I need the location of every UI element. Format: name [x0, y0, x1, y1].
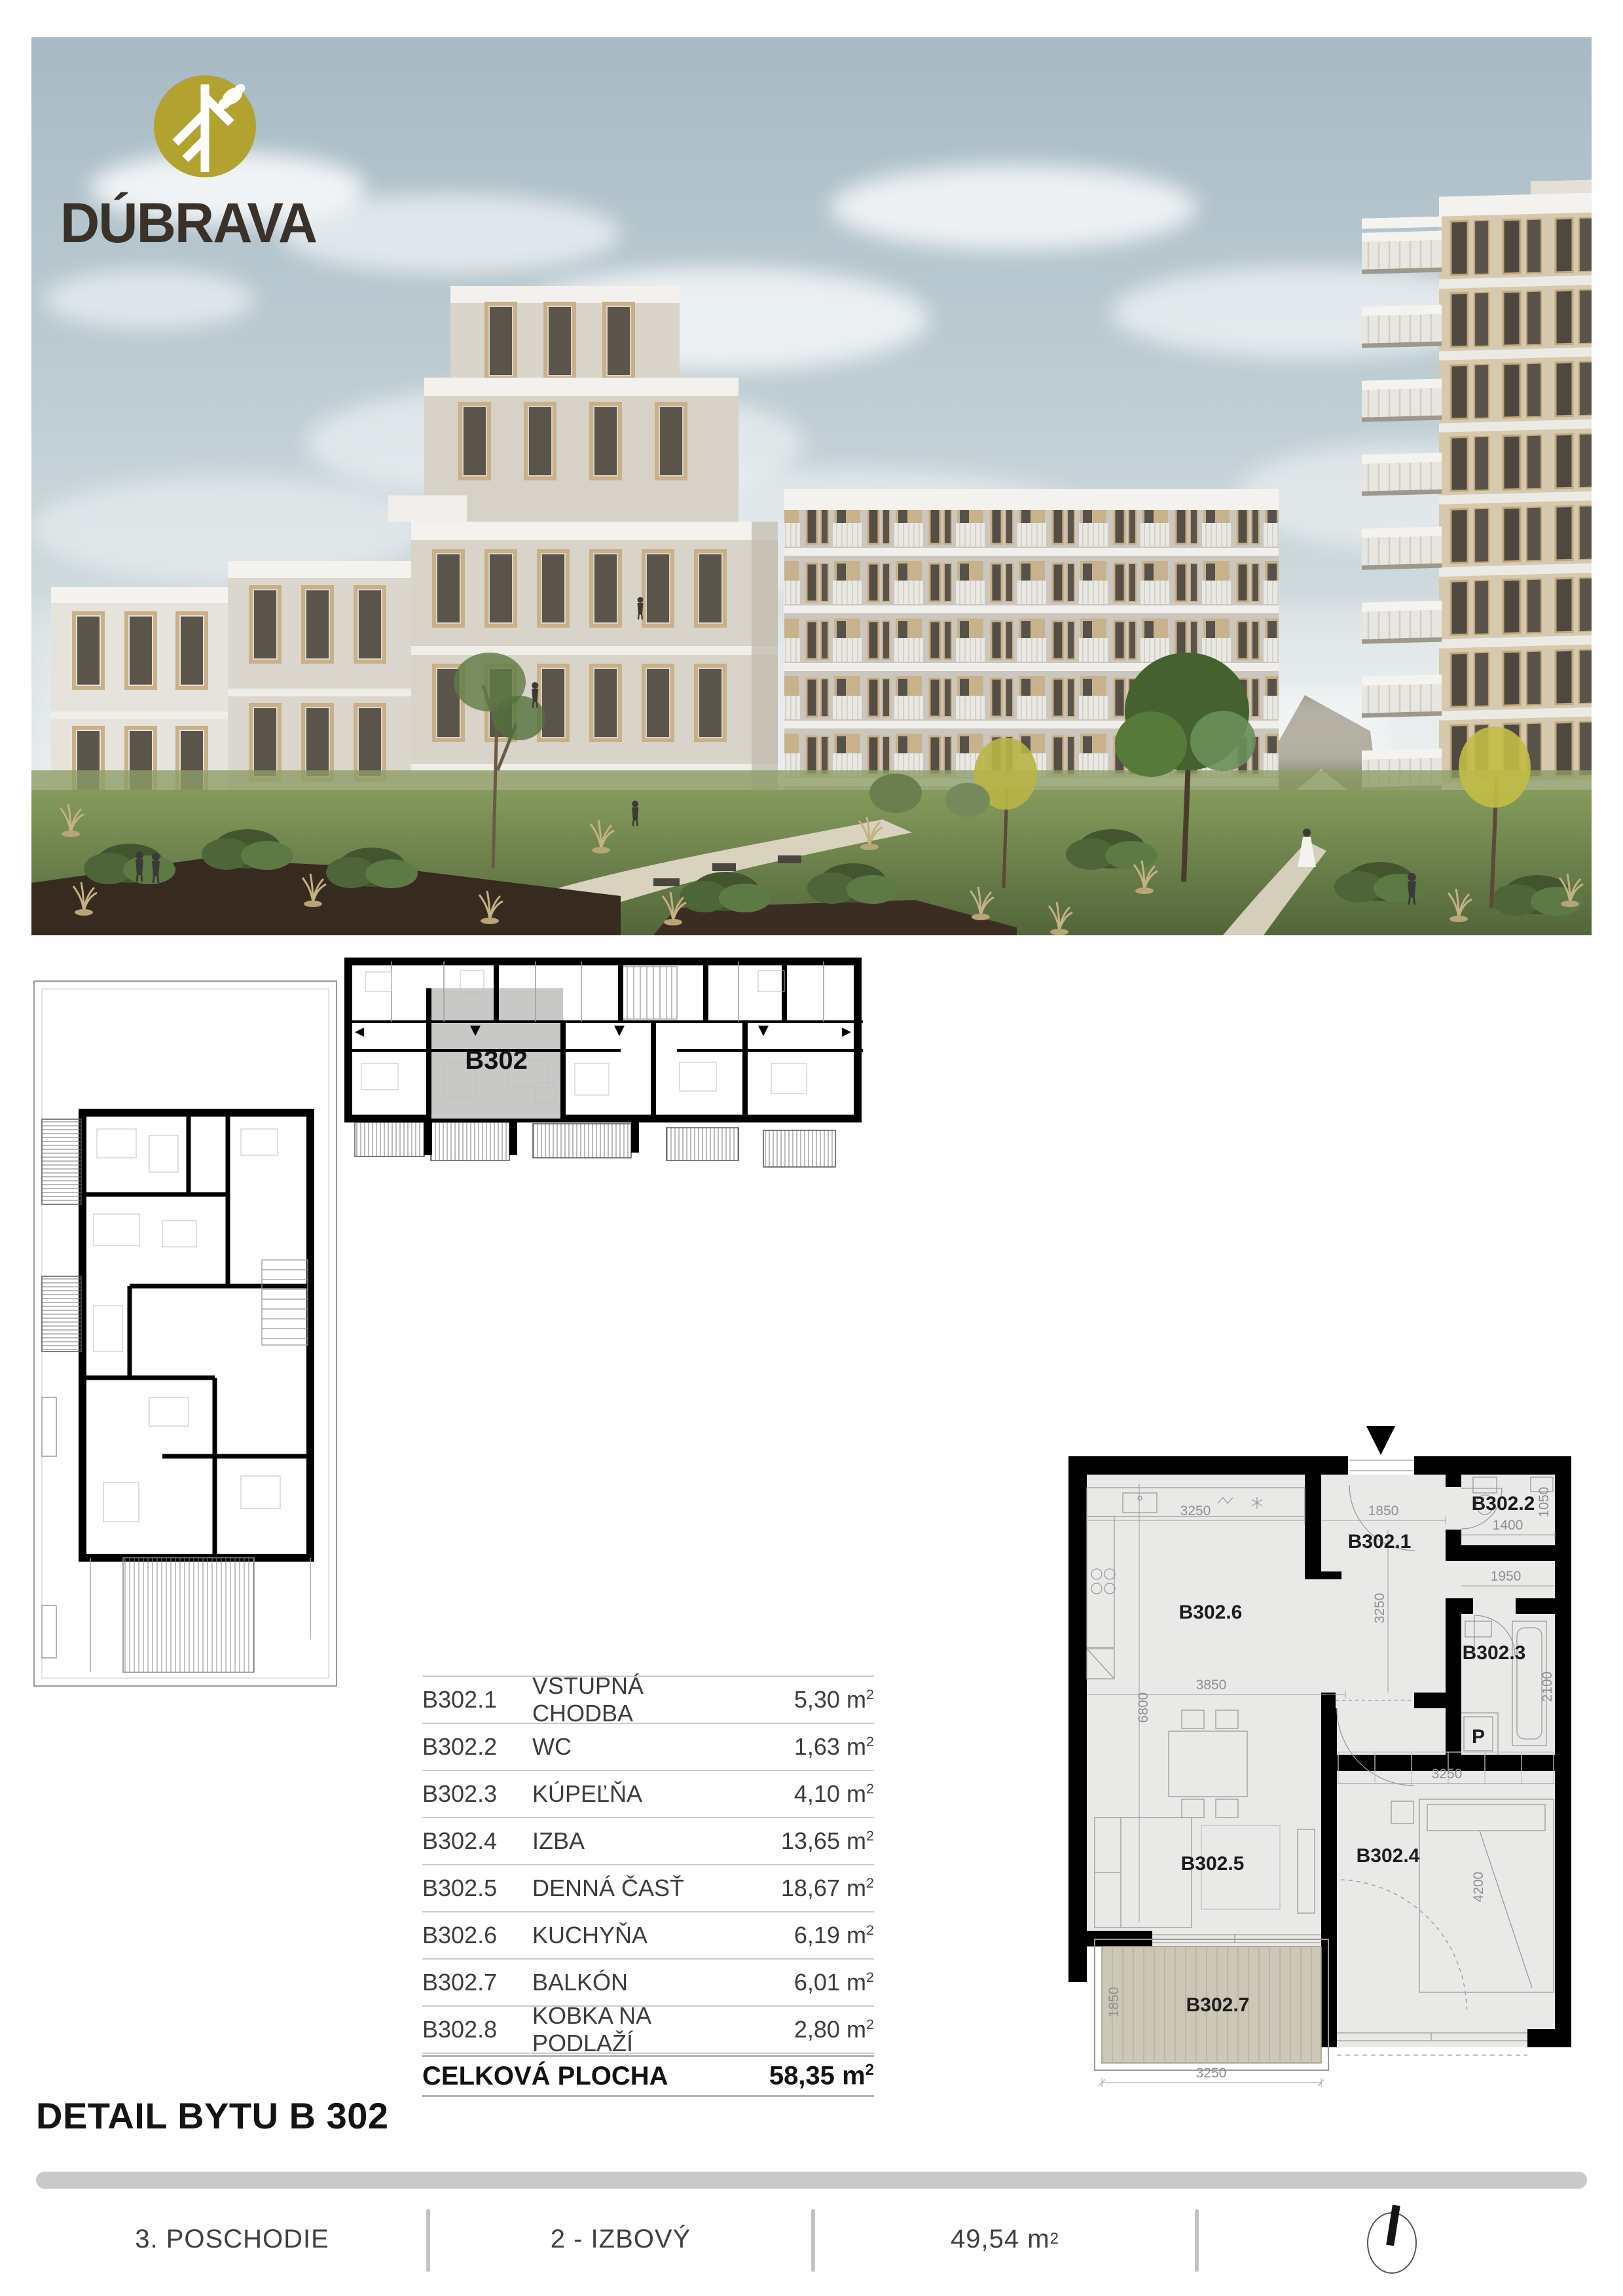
- table-row: B302.6 KUCHYŇA 6,19 m2: [422, 1911, 874, 1958]
- room-name: KOBKA NA PODLAŽÍ: [532, 2002, 750, 2057]
- svg-text:3250: 3250: [1180, 1503, 1211, 1518]
- room-name: VSTUPNÁ CHODBA: [532, 1672, 750, 1727]
- room-name: KUCHYŇA: [532, 1922, 750, 1949]
- terrace-deck: [123, 1558, 254, 1672]
- svg-text:1050: 1050: [1537, 1487, 1552, 1518]
- footer-area: 49,54 m2: [813, 2202, 1197, 2276]
- room-label-washer: P: [1472, 1726, 1485, 1748]
- brand-logo: [147, 69, 263, 184]
- svg-text:3850: 3850: [1196, 1677, 1227, 1693]
- room-name: IZBA: [532, 1827, 750, 1855]
- room-name: DENNÁ ČASŤ: [532, 1874, 750, 1902]
- footer-layout: 2 - IZBOVÝ: [428, 2202, 813, 2276]
- room-label-bedroom: B302.4: [1357, 1845, 1420, 1867]
- table-row: B302.4 IZBA 13,65 m2: [422, 1817, 874, 1864]
- tree-logo-icon: [147, 69, 263, 184]
- hero-rendering: [31, 37, 1592, 935]
- room-table: B302.1 VSTUPNÁ CHODBA 5,30 m2 B302.2 WC …: [422, 1676, 874, 2054]
- total-label: CELKOVÁ PLOCHA: [422, 2062, 743, 2091]
- footer-divider: [426, 2209, 430, 2272]
- table-row: B302.8 KOBKA NA PODLAŽÍ 2,80 m2: [422, 2005, 874, 2054]
- room-name: KÚPEĽŇA: [532, 1780, 750, 1808]
- brochure-page: DÚBRAVA: [0, 0, 1623, 2296]
- room-code: B302.8: [422, 2016, 532, 2043]
- room-label-wc: B302.2: [1472, 1493, 1535, 1515]
- room-area: 2,80 m2: [750, 2016, 874, 2043]
- room-code: B302.4: [422, 1827, 532, 1855]
- page-title: DETAIL BYTU B 302: [36, 2094, 389, 2137]
- room-code: B302.5: [422, 1874, 532, 1902]
- room-code: B302.7: [422, 1969, 532, 1996]
- room-area: 5,30 m2: [750, 1686, 874, 1713]
- footer-compass-cell: [1197, 2202, 1587, 2276]
- footer-divider: [1195, 2209, 1199, 2272]
- table-row: B302.2 WC 1,63 m2: [422, 1723, 874, 1770]
- svg-text:2100: 2100: [1540, 1672, 1555, 1702]
- room-name: BALKÓN: [532, 1969, 750, 1996]
- table-row: B302.7 BALKÓN 6,01 m2: [422, 1958, 874, 2005]
- svg-text:1850: 1850: [1106, 1987, 1122, 2018]
- room-code: B302.1: [422, 1686, 532, 1713]
- room-area: 4,10 m2: [750, 1780, 874, 1808]
- footer-divider: [811, 2209, 815, 2272]
- brand-name: DÚBRAVA: [60, 191, 316, 256]
- room-area: 1,63 m2: [750, 1733, 874, 1761]
- room-label-bath: B302.3: [1463, 1642, 1526, 1664]
- svg-text:1400: 1400: [1493, 1518, 1523, 1533]
- footer-floor: 3. POSCHODIE: [36, 2202, 428, 2276]
- table-row: B302.1 VSTUPNÁ CHODBA 5,30 m2: [422, 1676, 874, 1723]
- room-area: 13,65 m2: [750, 1827, 874, 1855]
- room-code: B302.3: [422, 1780, 532, 1808]
- room-code: B302.6: [422, 1922, 532, 1949]
- svg-text:3250: 3250: [1432, 1767, 1463, 1782]
- room-name: WC: [532, 1733, 750, 1761]
- room-area: 6,01 m2: [750, 1969, 874, 1996]
- svg-text:3250: 3250: [1196, 2066, 1227, 2081]
- floor-plan-overview-horizontal: B302: [339, 952, 867, 1181]
- apartment-detail-plan: 3250 1850 1400 1050 3250 1950 2100 6800 …: [1061, 1425, 1584, 2099]
- entrance-marker-icon: [1366, 1426, 1395, 1455]
- room-label-balcony: B302.7: [1186, 1994, 1250, 2016]
- compass-north-icon: [1353, 2200, 1431, 2278]
- rendering-illustration: [31, 37, 1592, 935]
- room-code: B302.2: [422, 1733, 532, 1761]
- overview-balconies: [355, 1119, 835, 1167]
- table-row: B302.5 DENNÁ ČASŤ 18,67 m2: [422, 1864, 874, 1911]
- overview-unit-label: B302: [465, 1046, 528, 1075]
- room-area: 18,67 m2: [750, 1874, 874, 1902]
- room-label-living: B302.5: [1181, 1853, 1245, 1874]
- table-row: B302.3 KÚPEĽŇA 4,10 m2: [422, 1770, 874, 1817]
- total-area: 58,35 m2: [743, 2061, 874, 2090]
- room-area: 6,19 m2: [750, 1922, 874, 1949]
- svg-text:1950: 1950: [1491, 1569, 1522, 1584]
- room-label-kitchen: B302.6: [1179, 1602, 1243, 1623]
- svg-text:3250: 3250: [1372, 1593, 1387, 1624]
- total-area-row: CELKOVÁ PLOCHA 58,35 m2: [422, 2055, 874, 2097]
- svg-text:6800: 6800: [1136, 1693, 1151, 1723]
- room-label-hall: B302.1: [1348, 1531, 1412, 1552]
- svg-text:1850: 1850: [1368, 1503, 1399, 1518]
- floor-plan-overview-vertical: [31, 978, 339, 1689]
- svg-text:4200: 4200: [1471, 1872, 1486, 1903]
- divider-bar: [36, 2172, 1587, 2189]
